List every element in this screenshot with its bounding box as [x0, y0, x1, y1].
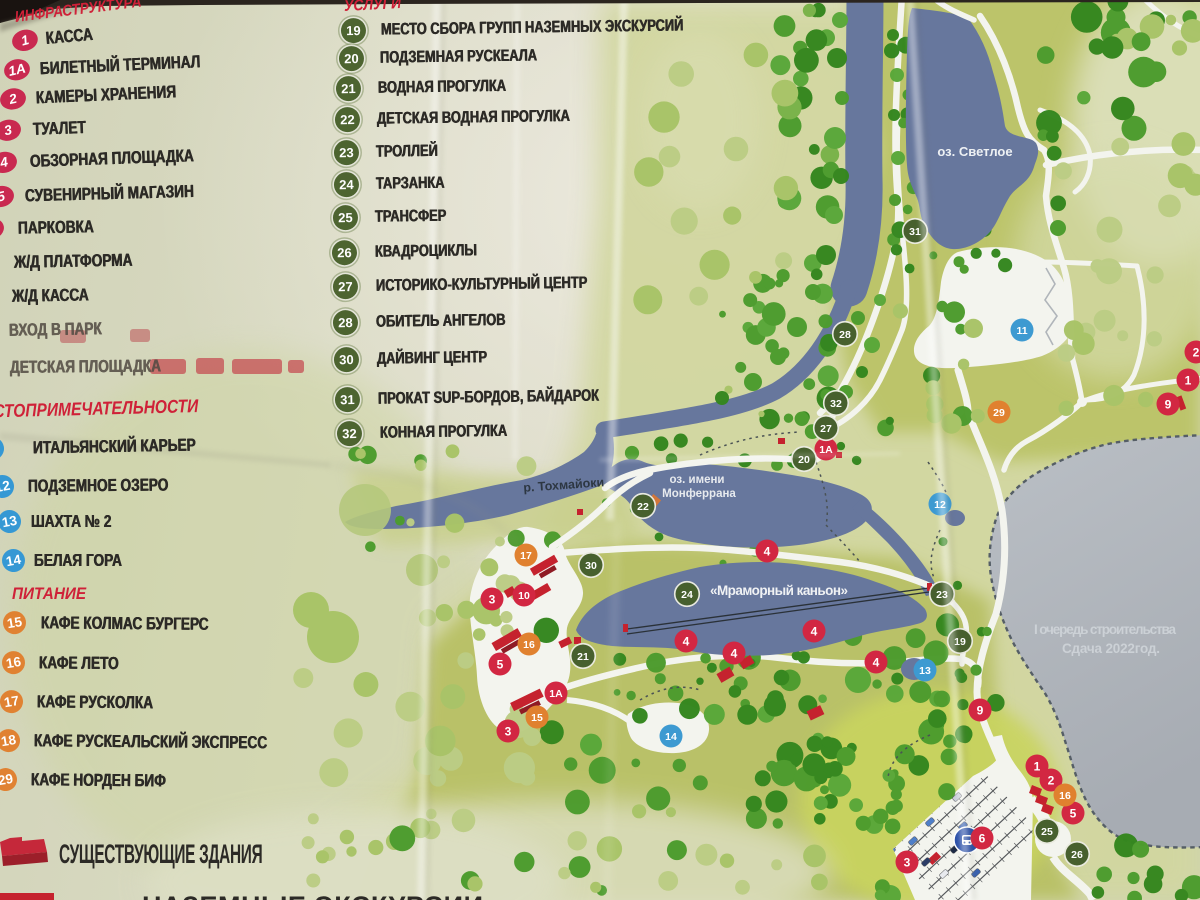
- svg-text:оз. Светлое: оз. Светлое: [937, 144, 1012, 159]
- svg-text:15: 15: [531, 712, 543, 724]
- svg-text:5: 5: [1070, 806, 1077, 820]
- svg-text:Монферрана: Монферрана: [662, 488, 736, 500]
- svg-text:1: 1: [1185, 373, 1192, 387]
- svg-text:9: 9: [1165, 397, 1172, 411]
- svg-text:14: 14: [665, 731, 677, 743]
- svg-text:31: 31: [909, 226, 921, 238]
- svg-text:2: 2: [1048, 773, 1055, 787]
- svg-text:25: 25: [1041, 826, 1053, 838]
- svg-text:4: 4: [873, 655, 880, 669]
- svg-text:оз. имени: оз. имени: [670, 474, 725, 486]
- svg-text:Сдача 2022год.: Сдача 2022год.: [1062, 641, 1160, 656]
- svg-text:3: 3: [489, 592, 496, 606]
- svg-text:28: 28: [839, 329, 851, 341]
- svg-text:22: 22: [637, 501, 649, 513]
- svg-text:НАЗЕМНЫЕ ЭКСКУРСИИ: НАЗЕМНЫЕ ЭКСКУРСИИ: [142, 891, 483, 900]
- svg-text:5: 5: [497, 657, 504, 671]
- svg-text:3: 3: [505, 724, 512, 738]
- svg-text:27: 27: [820, 423, 832, 435]
- svg-text:1: 1: [1034, 759, 1041, 773]
- svg-text:4: 4: [683, 634, 690, 648]
- svg-text:30: 30: [585, 560, 597, 572]
- svg-text:4: 4: [731, 646, 738, 660]
- svg-text:17: 17: [520, 550, 532, 562]
- svg-text:21: 21: [577, 651, 589, 663]
- svg-text:I очередь строительства: I очередь строительства: [1034, 622, 1176, 637]
- svg-text:13: 13: [919, 665, 931, 677]
- svg-text:10: 10: [518, 590, 530, 602]
- svg-text:29: 29: [993, 407, 1005, 419]
- svg-text:3: 3: [904, 855, 911, 869]
- svg-text:16: 16: [1059, 790, 1071, 802]
- svg-text:4: 4: [764, 544, 771, 558]
- svg-text:11: 11: [1016, 325, 1027, 337]
- svg-text:16: 16: [523, 639, 535, 651]
- svg-text:«Мраморный каньон»: «Мраморный каньон»: [710, 583, 848, 598]
- svg-text:2: 2: [1193, 345, 1200, 359]
- svg-text:1А: 1А: [549, 688, 563, 700]
- svg-text:6: 6: [979, 831, 986, 845]
- svg-text:24: 24: [681, 589, 693, 601]
- svg-text:26: 26: [1071, 849, 1083, 861]
- svg-text:4: 4: [811, 624, 818, 638]
- svg-text:9: 9: [977, 703, 984, 717]
- svg-text:32: 32: [830, 398, 842, 410]
